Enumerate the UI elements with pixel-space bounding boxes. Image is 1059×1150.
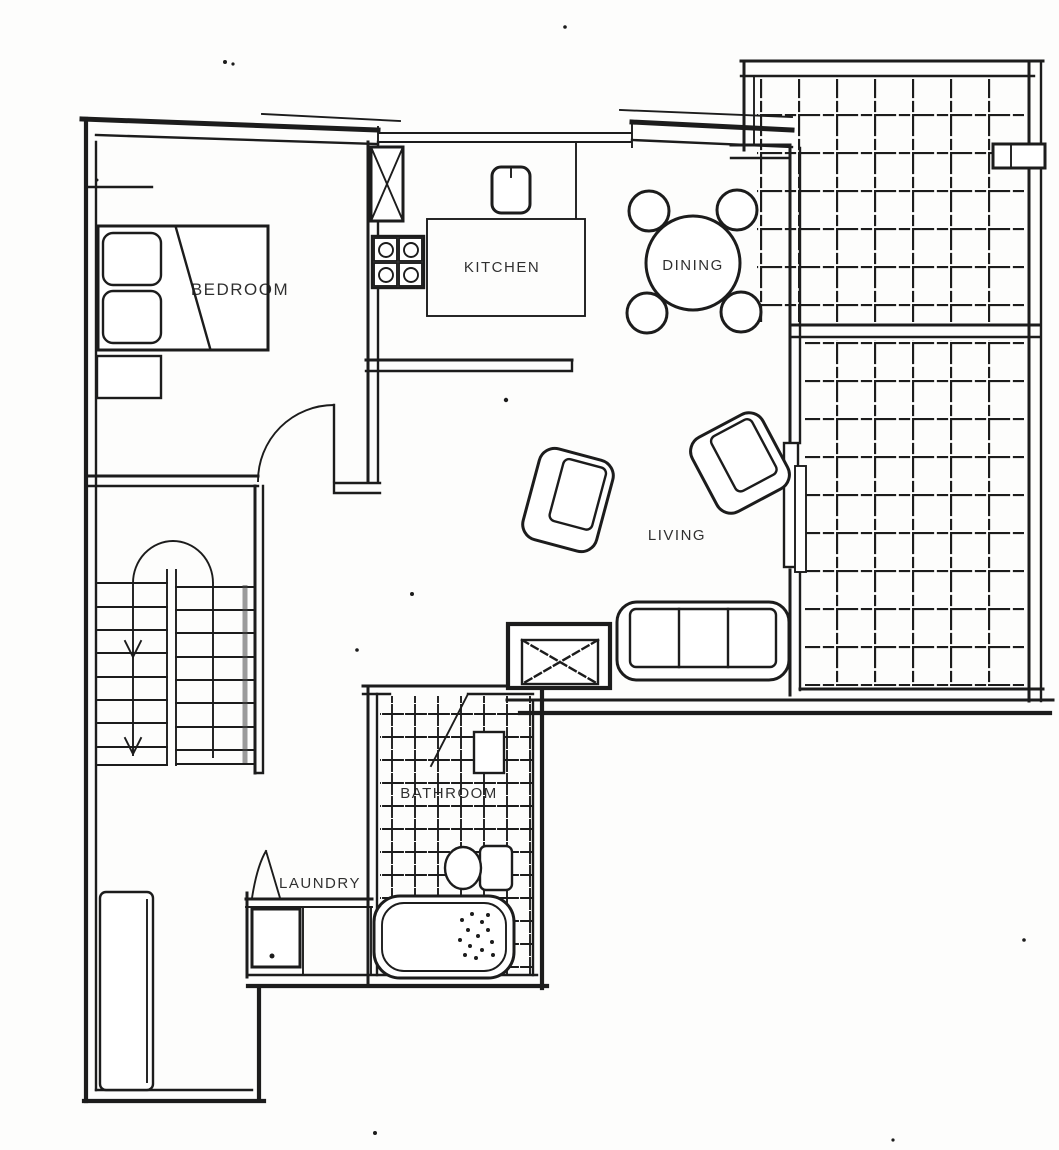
living-label: LIVING xyxy=(648,527,706,544)
bathroom-label: BATHROOM xyxy=(400,785,498,802)
floorplan-scan-page: BEDROOM KITCHEN DINING LIVING BATHROOM L… xyxy=(0,0,1059,1150)
kitchen-sink xyxy=(492,167,530,213)
armchair-left xyxy=(519,445,617,555)
floorplan-drawing: BEDROOM KITCHEN DINING LIVING BATHROOM L… xyxy=(0,0,1059,1150)
pantry-cabinet xyxy=(371,147,403,221)
bathtub xyxy=(374,896,514,978)
armchair-right xyxy=(685,407,795,519)
nightstand xyxy=(97,356,161,398)
staircase xyxy=(98,541,255,765)
bedroom-door-swing xyxy=(258,405,334,481)
dining-chair xyxy=(717,190,757,230)
dining-chair xyxy=(627,293,667,333)
dining-chair xyxy=(721,292,761,332)
sofa xyxy=(617,602,789,680)
laundry-bench-tiles xyxy=(303,907,371,975)
dining-label: DINING xyxy=(662,257,724,274)
washer xyxy=(252,909,300,967)
balcony-tiles-right xyxy=(805,340,1024,686)
balcony-tiles-top xyxy=(757,79,1024,322)
bedroom-label: BEDROOM xyxy=(191,280,289,299)
laundry-door-swing xyxy=(252,851,280,898)
balcony-bracket xyxy=(993,144,1045,168)
crossed-box-table xyxy=(508,624,610,688)
bathroom-vanity xyxy=(474,732,504,773)
kitchen-label: KITCHEN xyxy=(464,259,540,276)
laundry-label: LAUNDRY xyxy=(279,875,361,892)
room-labels: BEDROOM KITCHEN DINING LIVING BATHROOM L… xyxy=(191,257,724,892)
sliding-door xyxy=(784,443,806,572)
stove xyxy=(372,236,424,288)
wardrobe xyxy=(100,892,153,1090)
dining-chair xyxy=(629,191,669,231)
